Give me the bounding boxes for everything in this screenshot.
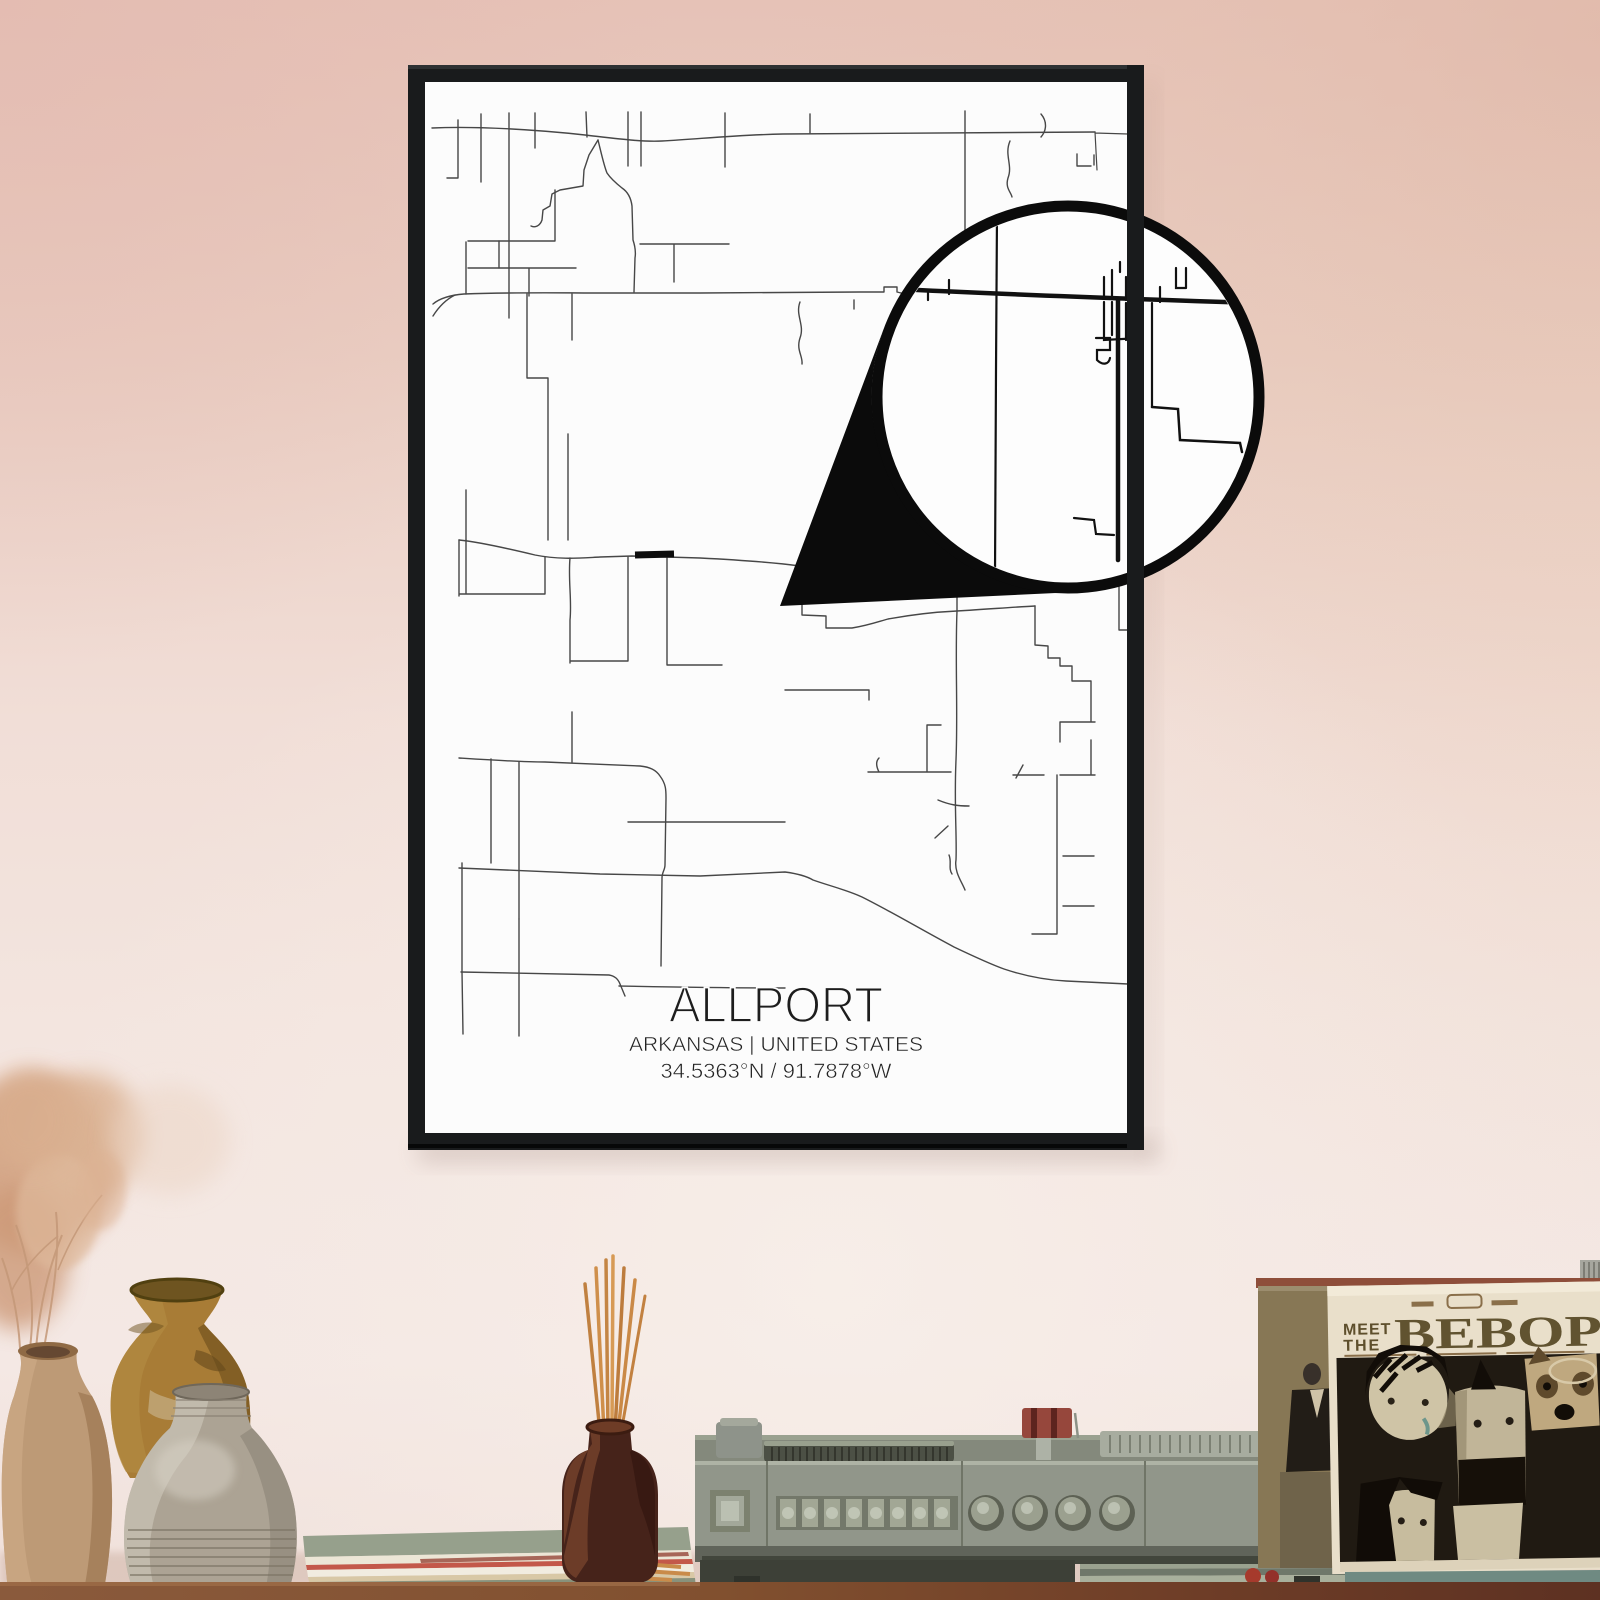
svg-text:ALLPORT: ALLPORT: [669, 977, 883, 1033]
svg-text:34.5363°N / 91.7878°W: 34.5363°N / 91.7878°W: [661, 1060, 892, 1083]
svg-text:ARKANSAS | UNITED STATES: ARKANSAS | UNITED STATES: [629, 1034, 923, 1056]
svg-text:THE: THE: [1343, 1337, 1381, 1355]
svg-text:MEET: MEET: [1343, 1321, 1392, 1339]
